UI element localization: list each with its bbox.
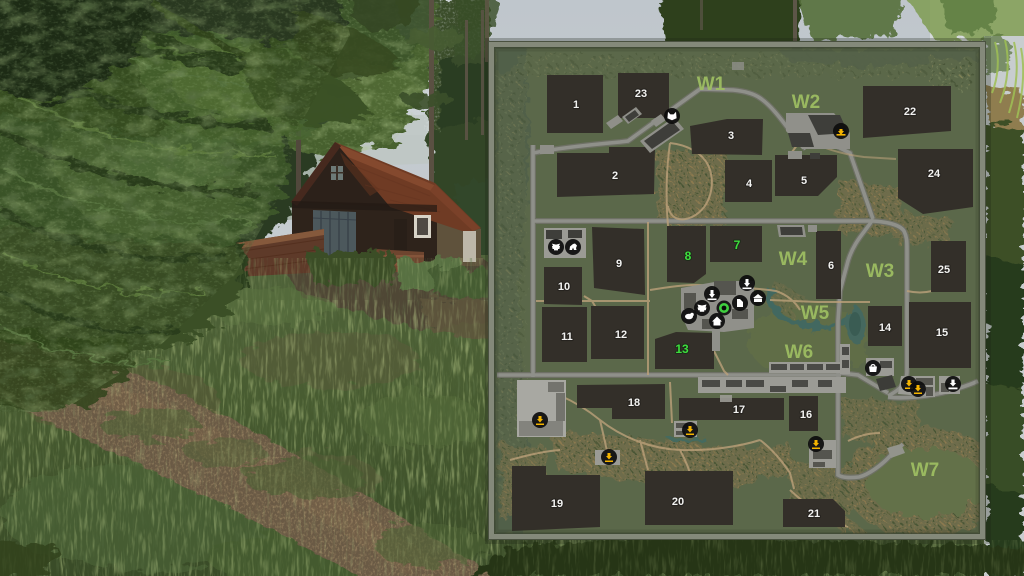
svg-text:12: 12 xyxy=(615,329,627,341)
svg-text:1: 1 xyxy=(573,99,579,111)
svg-text:16: 16 xyxy=(800,409,812,421)
svg-text:5: 5 xyxy=(801,175,807,187)
svg-text:17: 17 xyxy=(733,404,745,416)
svg-text:10: 10 xyxy=(558,281,570,293)
svg-text:19: 19 xyxy=(551,498,563,510)
svg-text:14: 14 xyxy=(879,322,892,334)
svg-text:11: 11 xyxy=(561,331,573,343)
svg-text:W5: W5 xyxy=(801,303,830,324)
svg-text:24: 24 xyxy=(928,168,941,180)
svg-text:W4: W4 xyxy=(779,249,808,270)
svg-text:7: 7 xyxy=(734,238,741,252)
svg-text:18: 18 xyxy=(628,397,640,409)
svg-text:3: 3 xyxy=(728,130,734,142)
svg-text:20: 20 xyxy=(672,496,684,508)
svg-text:W7: W7 xyxy=(911,460,940,481)
svg-text:4: 4 xyxy=(746,178,753,190)
svg-text:23: 23 xyxy=(635,88,647,100)
svg-text:25: 25 xyxy=(938,264,950,276)
svg-text:13: 13 xyxy=(675,342,689,356)
svg-text:W6: W6 xyxy=(785,342,814,363)
svg-text:W1: W1 xyxy=(697,74,726,95)
svg-text:W3: W3 xyxy=(866,261,895,282)
svg-text:2: 2 xyxy=(612,170,618,182)
svg-text:15: 15 xyxy=(936,327,948,339)
svg-text:9: 9 xyxy=(616,258,622,270)
svg-text:8: 8 xyxy=(685,249,692,263)
svg-text:21: 21 xyxy=(808,508,820,520)
svg-text:W2: W2 xyxy=(792,92,821,113)
svg-text:6: 6 xyxy=(828,260,834,272)
svg-text:22: 22 xyxy=(904,106,916,118)
